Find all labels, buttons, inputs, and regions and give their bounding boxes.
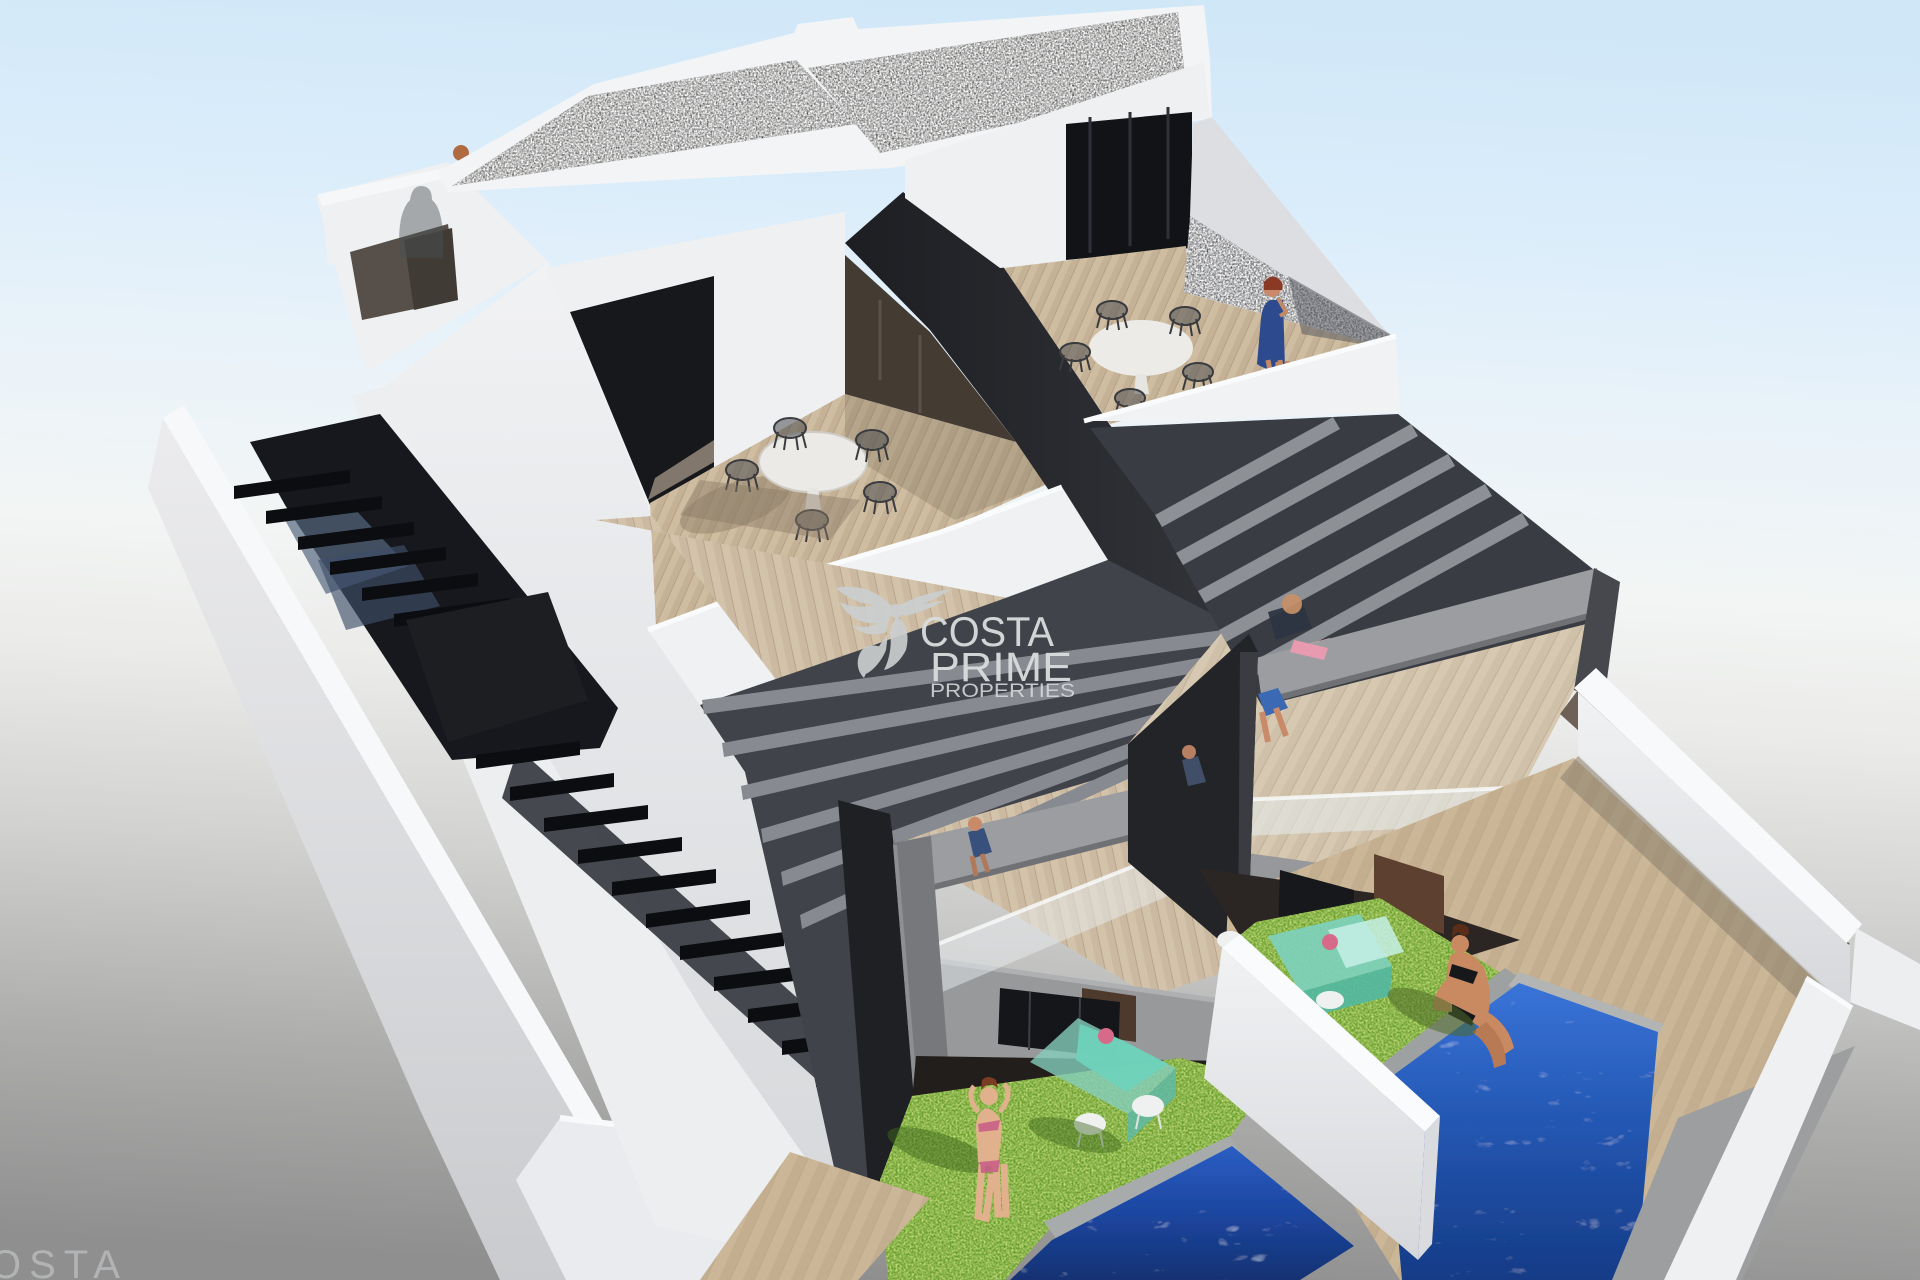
svg-text:PROPERTIES: PROPERTIES <box>930 681 1075 702</box>
svg-text:OSTA: OSTA <box>0 1243 128 1280</box>
